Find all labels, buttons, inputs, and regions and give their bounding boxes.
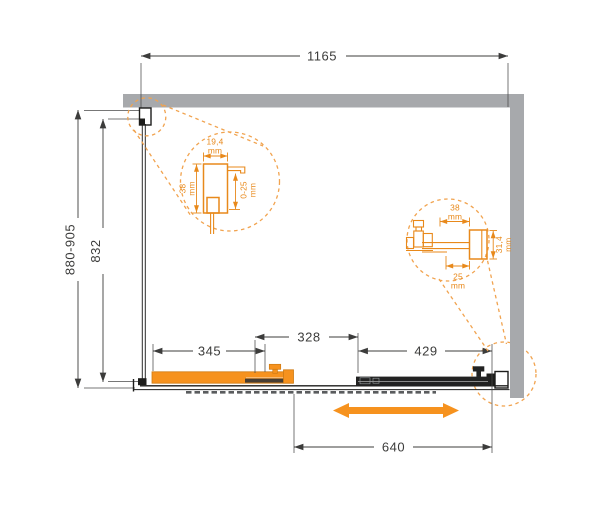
dim-glass-height: 832 <box>88 119 140 382</box>
dim-door-panel: 345 <box>153 344 265 373</box>
technical-drawing-canvas: 1165 880-905 832 <box>0 0 600 505</box>
dim-door-panel-label: 345 <box>198 344 221 359</box>
dim-height-range-label: 880-905 <box>63 224 78 275</box>
sliding-door-panel <box>152 364 294 383</box>
side-glass-panel <box>140 108 152 379</box>
dim-total-width-label: 1165 <box>307 49 337 64</box>
dim-opening: 640 <box>294 394 492 455</box>
detail-left-width-unit: mm <box>208 146 222 156</box>
floor-plan-svg: 1165 880-905 832 <box>0 0 600 505</box>
dim-fixed-panel-label: 429 <box>414 344 437 359</box>
detail-left-drawing: 19,4 mm 38 mm 0-25 mm <box>178 137 258 235</box>
wall-profile-top-left-insert <box>140 119 146 126</box>
detail-left-profile-insert <box>207 198 219 214</box>
dim-glass-height-label: 832 <box>88 239 103 262</box>
detail-left-depth-unit: mm <box>187 181 197 195</box>
dim-opening-label: 640 <box>382 440 405 455</box>
detail-right-width-unit: mm <box>448 212 462 222</box>
slide-direction-arrow-icon <box>333 403 459 418</box>
detail-left-flange <box>228 167 245 173</box>
detail-right-height-unit: mm <box>503 238 513 252</box>
detail-source-circle-right <box>472 342 536 406</box>
wall-top <box>123 94 524 108</box>
door-handle-knob-dark <box>473 366 484 377</box>
dim-overlap-label: 328 <box>297 330 320 345</box>
detail-left-adjustment-unit: mm <box>248 183 258 197</box>
detail-leader-right-b <box>486 254 507 344</box>
detail-right-inner-width-unit: mm <box>451 281 465 291</box>
dim-fixed-panel: 429 <box>359 344 493 454</box>
detail-right-roller <box>406 221 433 251</box>
walls <box>123 94 524 398</box>
bottom-corner-bracket <box>138 378 147 385</box>
fixed-door-panel <box>356 366 490 386</box>
detail-right-profile <box>470 230 488 259</box>
detail-right-drawing: 38 mm 25 mm 31,4 mm <box>406 203 513 291</box>
